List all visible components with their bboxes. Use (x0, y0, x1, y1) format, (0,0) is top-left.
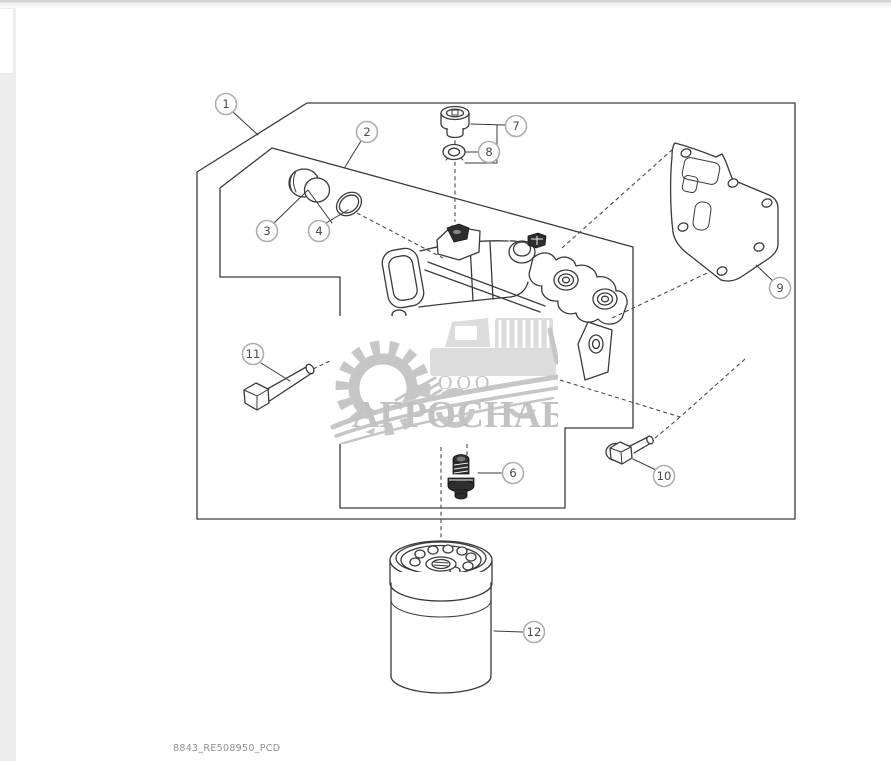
part-gasket (671, 143, 778, 281)
callout-9: 9 (770, 278, 791, 299)
callout-6: 6 (503, 463, 524, 484)
part-fitting (448, 455, 474, 500)
callout-4: 4 (309, 221, 330, 242)
svg-text:4: 4 (315, 224, 322, 238)
svg-text:7: 7 (512, 119, 519, 133)
part-o-ring (332, 187, 366, 220)
callout-8: 8 (479, 142, 500, 163)
callout-1: 1 (216, 94, 237, 115)
svg-text:2: 2 (363, 125, 370, 139)
callout-2: 2 (357, 122, 378, 143)
callout-3: 3 (257, 221, 278, 242)
svg-text:1: 1 (222, 97, 229, 111)
part-bolt-long (244, 363, 316, 410)
page: ООО АГРОСНАБ (0, 0, 891, 761)
watermark-prefix: ООО (438, 372, 493, 394)
watermark-name: АГРОСНАБ (352, 394, 566, 436)
callout-10: 10 (654, 466, 675, 487)
exploded-parts-diagram: ООО АГРОСНАБ (0, 0, 891, 761)
svg-text:11: 11 (246, 347, 261, 361)
svg-text:10: 10 (657, 469, 672, 483)
svg-text:8: 8 (485, 145, 492, 159)
part-bolt-short (606, 435, 655, 464)
part-cap (441, 107, 469, 138)
svg-text:3: 3 (263, 224, 270, 238)
svg-text:6: 6 (509, 466, 516, 480)
part-plug (289, 169, 330, 202)
svg-text:12: 12 (527, 625, 542, 639)
watermark-logo: ООО АГРОСНАБ (330, 316, 566, 444)
callout-12: 12 (524, 622, 545, 643)
part-filter-cartridge (390, 541, 492, 693)
callout-11: 11 (243, 344, 264, 365)
drawing-reference-code: 8843_RE508950_PCD (173, 743, 280, 754)
callout-7: 7 (506, 116, 527, 137)
part-sealing-washer (443, 145, 465, 161)
svg-text:9: 9 (776, 281, 783, 295)
